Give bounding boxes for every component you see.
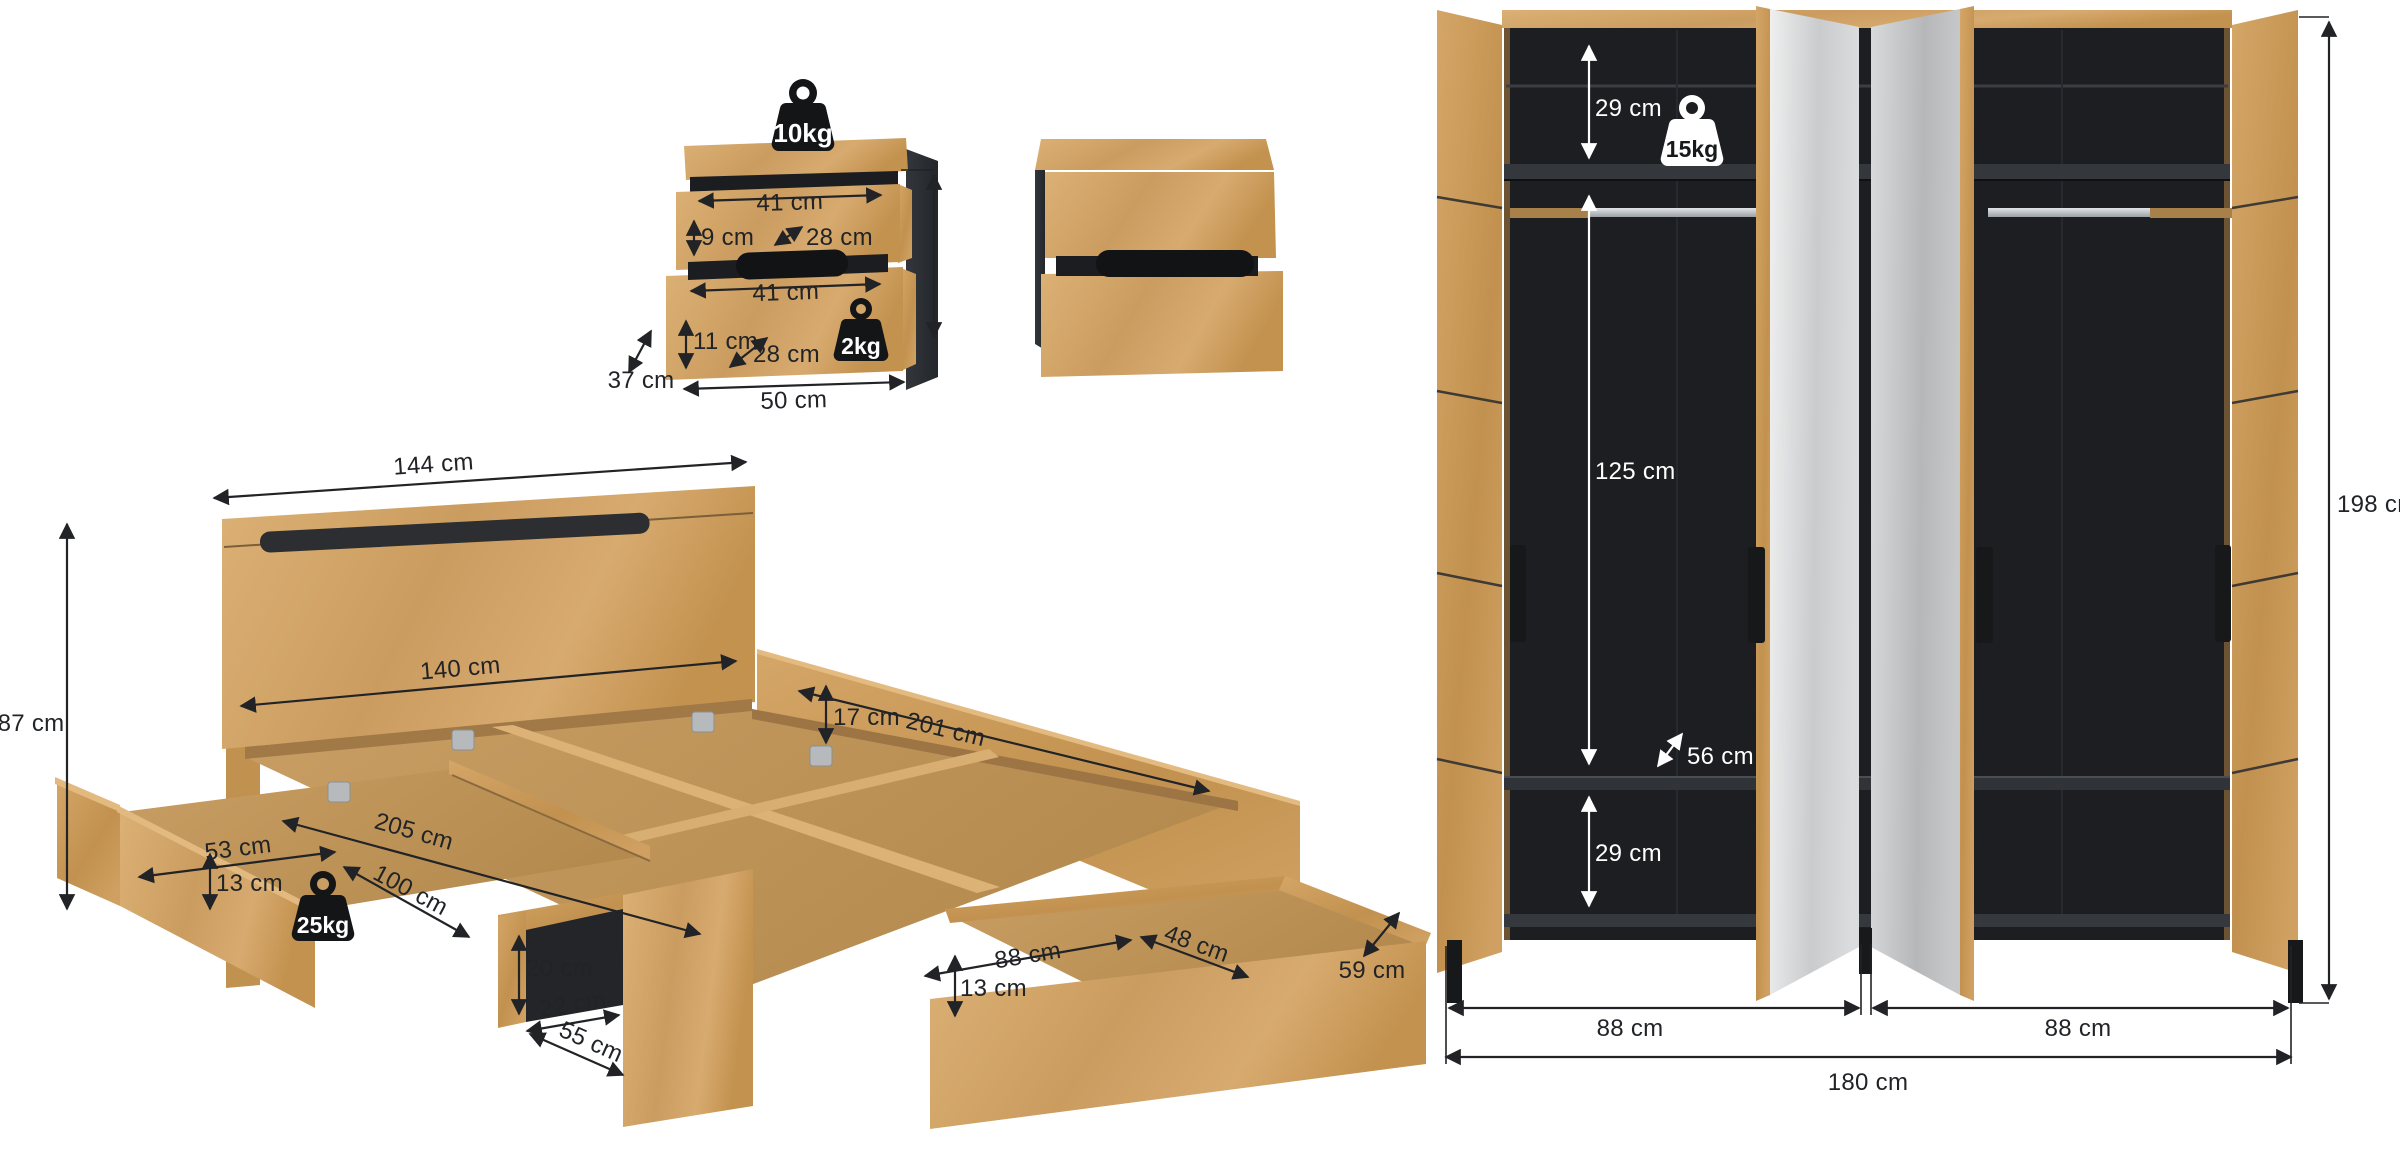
mirror-door-left-edge xyxy=(1756,6,1770,1001)
wardrobe: 29 cm 125 cm 56 cm 29 cm 15kg xyxy=(1437,6,2400,1096)
wardrobe-top-shelf xyxy=(1504,164,2230,179)
dim-label-bottom-section: 29 cm xyxy=(1595,840,1662,867)
wardrobe-rail-bracket-left xyxy=(1510,208,1590,218)
dim-label-top-section: 29 cm xyxy=(1595,95,1662,122)
dim-label-underbed-clearance: 20 cm xyxy=(526,955,593,982)
dim-label-drawer2-width: 41 cm xyxy=(752,278,820,307)
dim-label-hanging-section: 125 cm xyxy=(1595,458,1676,485)
furniture-dimensions-diagram: 10kg 2kg 41 cm 9 cm 28 cm 41 cm 11 cm 28… xyxy=(0,0,2400,1153)
wardrobe-left-door xyxy=(1437,10,1502,973)
wardrobe-right-door xyxy=(2232,10,2298,973)
mirror-door-left xyxy=(1770,9,1859,995)
nightstand2-drawer1-front xyxy=(1045,172,1276,258)
weight-badge-10kg-icon: 10kg xyxy=(772,79,835,151)
weight-badge-10kg-label: 10kg xyxy=(773,118,832,148)
nightstand2-top-panel xyxy=(1035,139,1274,170)
dim-label-headboard-height: 87 cm xyxy=(0,710,64,737)
dim-label-drawer2-height: 11 cm xyxy=(693,328,758,355)
mirror-door-right xyxy=(1871,9,1960,995)
dim-label-frame-height: 17 cm xyxy=(833,704,900,731)
nightstand-open: 10kg 2kg 41 cm 9 cm 28 cm 41 cm 11 cm 28… xyxy=(608,79,938,415)
bracket-icon xyxy=(328,782,350,802)
dim-label-bed-depth: 59 cm xyxy=(1339,957,1406,984)
bracket-icon xyxy=(810,746,832,766)
nightstand-drawer1-side xyxy=(898,184,912,263)
dim-label-foot-drawer-width: 88 cm xyxy=(993,937,1063,975)
nightstand-handle-notch xyxy=(736,249,849,280)
footboard-post xyxy=(623,869,753,1127)
dim-label-drawer1-height: 9 cm xyxy=(701,224,754,251)
nightstand-drawer2-side xyxy=(901,268,916,371)
dim-label-nightstand-width: 50 cm xyxy=(760,386,828,415)
dim-label-left-section-width: 88 cm xyxy=(1597,1015,1664,1042)
dim-label-drawer1-depth: 28 cm xyxy=(806,224,873,251)
wardrobe-bottom-shelf xyxy=(1504,914,2230,927)
wardrobe-foot xyxy=(1447,940,1462,1003)
right-door-panel xyxy=(2232,10,2298,973)
dim-label-side-drawer-height: 13 cm xyxy=(216,870,283,897)
dim-label-wardrobe-height: 198 cm xyxy=(2337,491,2400,518)
left-door-panel xyxy=(1437,10,1502,973)
bracket-icon xyxy=(692,712,714,732)
bracket-icon xyxy=(452,730,474,750)
dim-label-drawer1-width: 41 cm xyxy=(756,188,824,217)
mirror-door-right-edge xyxy=(1960,6,1974,1001)
wardrobe-mid-shelf xyxy=(1504,778,2230,790)
bed: 25kg 144 cm 87 cm 140 cm 17 cm 201 cm 20… xyxy=(0,448,1431,1129)
nightstand2-handle-notch xyxy=(1096,250,1254,277)
door-handle xyxy=(1748,547,1765,643)
dim-label-wardrobe-width: 180 cm xyxy=(1828,1069,1909,1096)
dim-label-headboard-width: 144 cm xyxy=(392,448,474,481)
dim-label-right-section-width: 88 cm xyxy=(2045,1015,2112,1042)
footboard-leg xyxy=(498,911,526,1028)
diagram-svg: 10kg 2kg 41 cm 9 cm 28 cm 41 cm 11 cm 28… xyxy=(0,0,2400,1153)
door-handle xyxy=(1510,545,1526,642)
nightstand-closed xyxy=(1035,139,1283,377)
door-handle xyxy=(2215,545,2231,642)
weight-badge-2kg-label: 2kg xyxy=(841,333,881,359)
nightstand2-drawer2-front xyxy=(1041,271,1283,377)
weight-badge-15kg-label: 15kg xyxy=(1666,136,1718,162)
weight-badge-25kg-label: 25kg xyxy=(297,912,349,938)
dim-label-nightstand-depth: 37 cm xyxy=(608,367,675,394)
dim-label-wardrobe-depth: 56 cm xyxy=(1687,743,1754,770)
wardrobe-top-panel xyxy=(1502,10,2232,28)
wardrobe-hanging-rail-right xyxy=(1988,208,2150,217)
dim-label-foot-drawer-height: 13 cm xyxy=(960,975,1027,1002)
door-handle xyxy=(1976,547,1993,643)
dim-line-nightstand-depth xyxy=(629,331,651,372)
dim-label-drawer2-depth: 28 cm xyxy=(753,341,820,368)
